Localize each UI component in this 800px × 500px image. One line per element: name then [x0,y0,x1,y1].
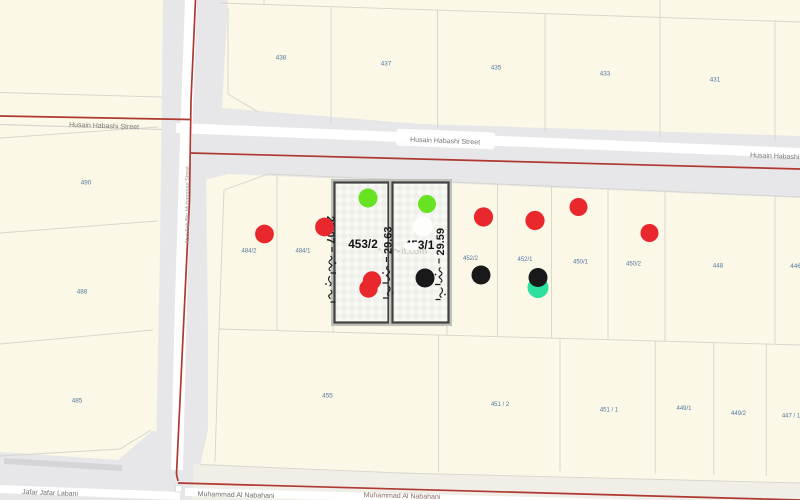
svg-text:435: 435 [491,65,502,72]
svg-text:490: 490 [81,180,92,187]
svg-text:447 / 1: 447 / 1 [782,414,800,420]
svg-text:452/1: 452/1 [517,257,533,263]
svg-text:431: 431 [710,77,721,84]
svg-text:29.63: 29.63 [383,226,395,254]
svg-text:484/1: 484/1 [295,249,311,255]
svg-text:455: 455 [322,393,333,400]
svg-text:Abdullah Bin Muhammad Street: Abdullah Bin Muhammad Street [185,166,191,244]
svg-text:433: 433 [600,71,611,78]
svg-text:451 / 1: 451 / 1 [600,408,619,414]
svg-text:449/1: 449/1 [676,406,692,412]
svg-text:451 / 2: 451 / 2 [491,402,510,408]
svg-text:448: 448 [713,263,724,270]
svg-text:453/2: 453/2 [348,237,378,251]
svg-text:488: 488 [77,289,88,296]
svg-text:484/2: 484/2 [241,249,257,255]
svg-text:449/2: 449/2 [731,411,747,417]
svg-text:Muhammad Al Nabahani: Muhammad Al Nabahani [364,492,441,500]
svg-text:438: 438 [276,55,287,62]
svg-text:446: 446 [790,263,800,270]
svg-text:29.59: 29.59 [435,228,447,256]
svg-text:437: 437 [381,61,392,68]
svg-text:450/2: 450/2 [626,262,642,268]
svg-text:450/1: 450/1 [573,260,589,266]
svg-text:452/2: 452/2 [463,256,479,262]
svg-text:485: 485 [72,398,83,405]
